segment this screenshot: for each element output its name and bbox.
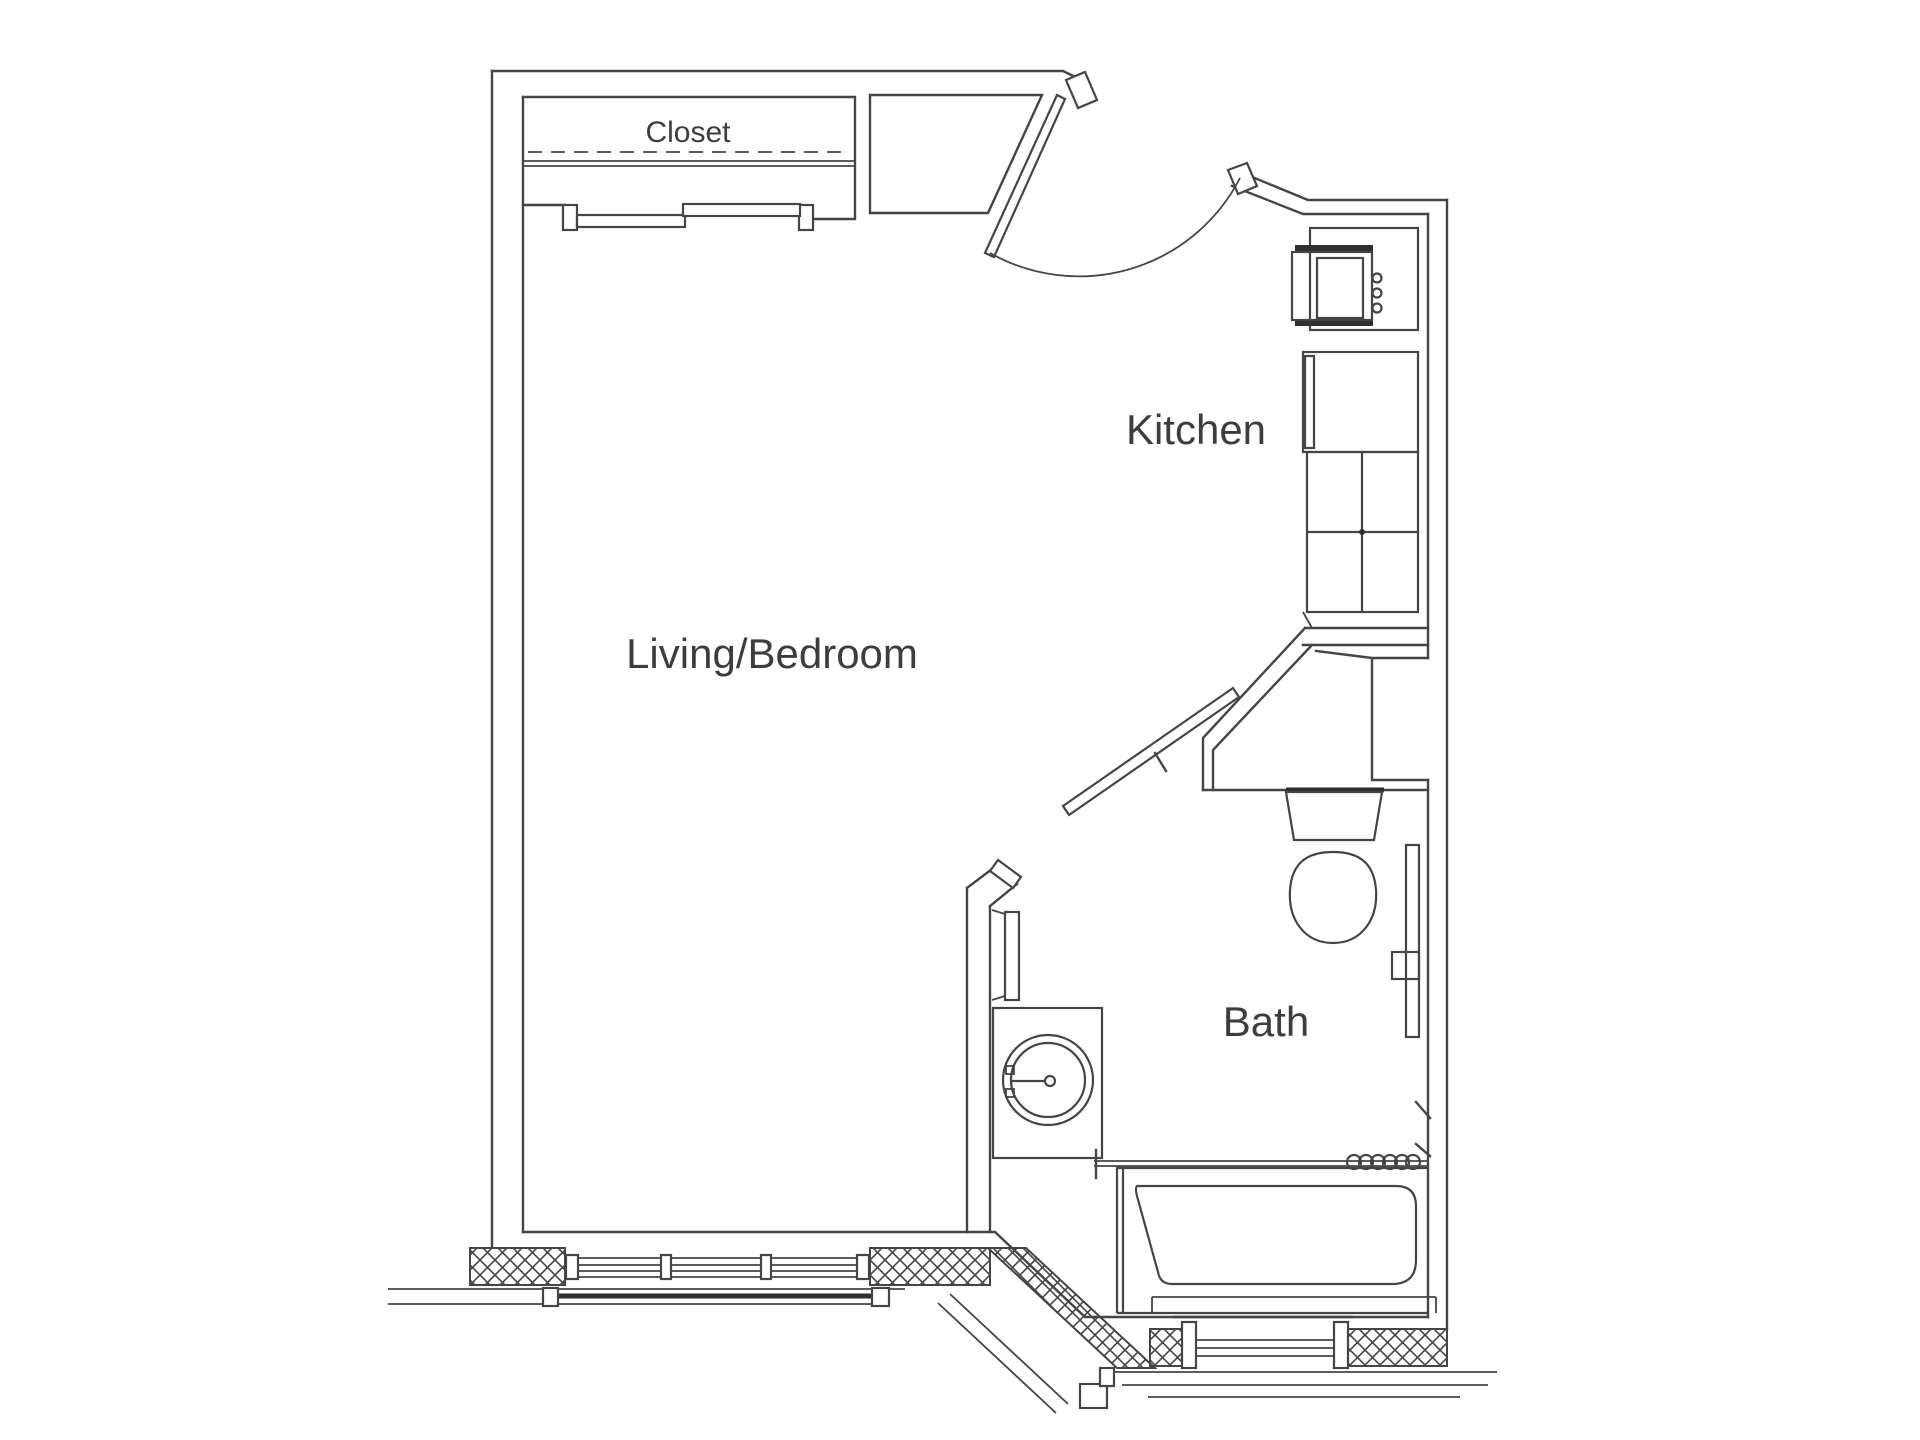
bathtub-apron	[1152, 1297, 1436, 1313]
shower-curtain-rod	[1094, 1161, 1428, 1166]
bathtub-basin	[1136, 1186, 1416, 1284]
entry-door-leaf	[985, 95, 1065, 257]
toilet-bowl	[1290, 852, 1376, 943]
refrigerator	[1303, 352, 1418, 452]
stove-inner-panel	[1317, 258, 1363, 318]
wall-niche	[1316, 651, 1428, 780]
bathtub-outline	[1117, 1168, 1428, 1313]
bath-wall-end-cap	[990, 860, 1021, 888]
hatched-wall-segment-3	[1150, 1329, 1182, 1366]
exterior-walls	[492, 71, 1447, 1329]
hatched-wall-segment-4	[1348, 1329, 1447, 1366]
entry-door	[985, 72, 1257, 276]
stove-body	[1292, 252, 1372, 320]
closet-sliding-panel-back	[683, 204, 800, 216]
top-wall	[492, 71, 1090, 84]
window-jamb-right	[857, 1255, 869, 1279]
room-label-kitchen: Kitchen	[1126, 406, 1266, 453]
kitchen-bottom-wall	[1303, 628, 1428, 645]
window-mullion-1	[661, 1255, 671, 1279]
sink-faucet-knob	[1045, 1076, 1055, 1086]
exterior-window-walls	[388, 1248, 1497, 1413]
grab-bar-right	[1406, 845, 1419, 1037]
closet-door-jamb-left	[563, 205, 577, 230]
kitchen-area: Kitchen	[1126, 228, 1418, 628]
entry-door-swing-arc	[990, 178, 1240, 276]
sill-end-left	[543, 1288, 558, 1306]
entry-door-jamb-a	[1066, 72, 1097, 108]
room-label-living-bedroom: Living/Bedroom	[626, 630, 918, 677]
bay-sill-foot	[1080, 1384, 1107, 1408]
bay-sill-lines	[938, 1294, 1068, 1413]
stove-knob-2	[1373, 289, 1382, 298]
toilet-tank	[1286, 792, 1382, 840]
window-mullion-2	[761, 1255, 771, 1279]
closet-shelf-line	[523, 161, 855, 166]
room-label-bath: Bath	[1223, 998, 1309, 1045]
bath-pocket-door-stop	[1155, 753, 1166, 771]
closet-area: Closet	[523, 97, 855, 230]
stove-knob-1	[1373, 274, 1382, 283]
hatched-wall-diagonal	[988, 1248, 1155, 1368]
bath-window-glazing	[1196, 1340, 1334, 1356]
kitchen-counter-end	[1303, 612, 1312, 628]
window-glazing-lines	[578, 1258, 857, 1277]
window-jamb-left	[566, 1255, 578, 1279]
sill-end-right	[872, 1288, 889, 1306]
kitchen-sink-dot	[1359, 529, 1365, 535]
floorplan-drawing: Closet Kitchen	[0, 0, 1920, 1440]
bath-window-sill-lines	[1108, 1372, 1497, 1397]
bath-sill-end-left	[1100, 1368, 1114, 1386]
towel-bar-left	[1005, 912, 1019, 1000]
closet-sliding-panel-front	[577, 215, 685, 227]
room-label-closet: Closet	[645, 116, 731, 149]
floorplan-page: Closet Kitchen	[0, 0, 1920, 1440]
entry-angled-wall-outer	[1240, 172, 1447, 200]
bath-window-jamb-left	[1182, 1322, 1196, 1368]
stove-knob-3	[1373, 304, 1382, 313]
towel-bar-left-brackets	[992, 910, 1005, 1000]
hatched-wall-segment-2	[870, 1248, 990, 1285]
entry-door-jamb-b	[1228, 163, 1257, 194]
bath-window-jamb-right	[1334, 1322, 1348, 1368]
hatched-wall-segment-1	[470, 1248, 565, 1285]
living-room-window	[388, 1255, 905, 1306]
refrigerator-door-line	[1305, 356, 1314, 448]
